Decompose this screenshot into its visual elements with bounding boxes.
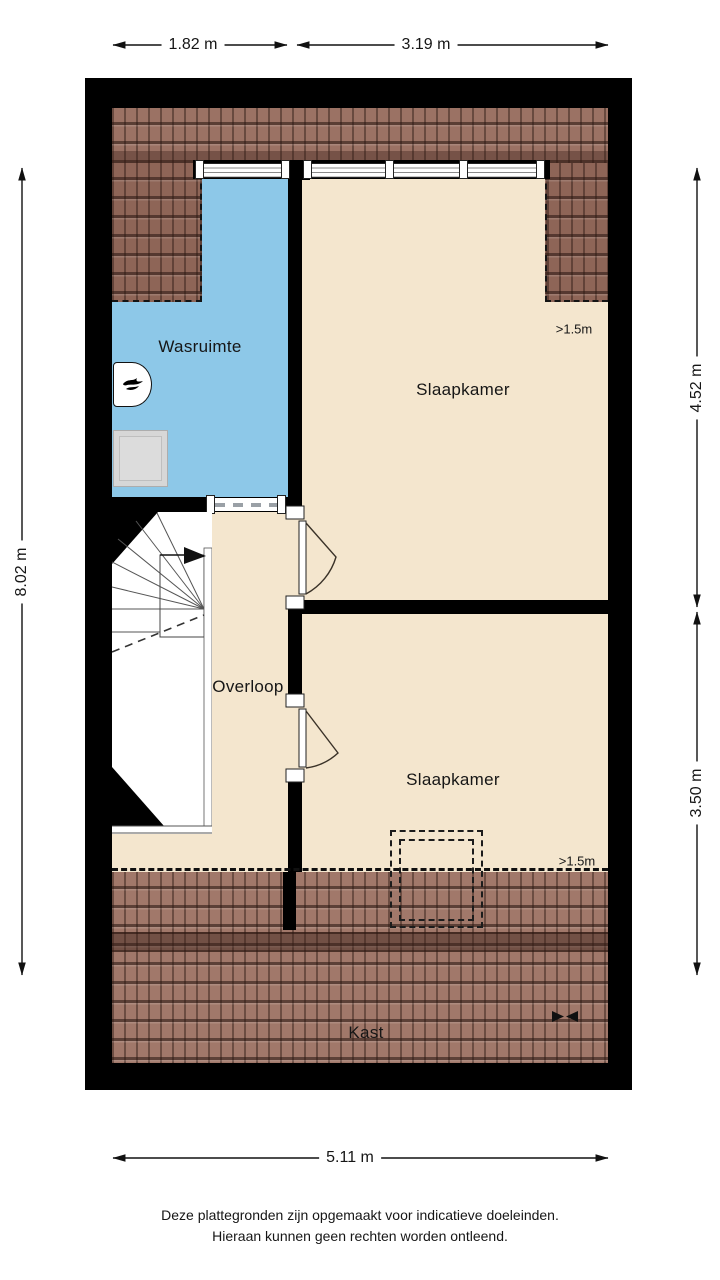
stair-corner-wall	[112, 512, 158, 564]
dimension-label-left: 8.02 m	[13, 541, 31, 604]
window-post	[459, 160, 468, 179]
dimension-label-top-left: 1.82 m	[162, 36, 225, 54]
roof-patch-right	[545, 163, 608, 302]
door-opening-bottom	[288, 707, 302, 769]
stair-landing-edge	[112, 826, 212, 834]
room-label-wasruimte: Wasruimte	[158, 337, 241, 357]
dormer-outline-inner	[399, 839, 474, 921]
wall-between-bedrooms	[288, 600, 632, 614]
headroom-label-top: >1.5m	[556, 322, 593, 337]
room-label-slaapkamer-bottom: Slaapkamer	[406, 770, 500, 790]
door-opening-top	[288, 519, 302, 596]
dimension-label-right-bottom: 3.50 m	[688, 762, 706, 825]
room-label-slaapkamer-top: Slaapkamer	[416, 380, 510, 400]
roof-patch-left	[112, 163, 202, 302]
door-frame-post	[277, 495, 286, 514]
dimension-label-bottom: 5.11 m	[319, 1149, 381, 1167]
stair-handrail-box	[160, 555, 204, 637]
stairs-drawing	[112, 512, 212, 834]
window-post	[536, 160, 545, 179]
headroom-label-bottom: >1.5m	[559, 854, 596, 869]
stair-walkline-dashed	[112, 615, 204, 652]
roof-ridge-band	[112, 932, 608, 952]
window-post	[303, 160, 312, 179]
window-post	[281, 160, 290, 179]
wall-stub-in-roof	[283, 872, 296, 930]
disclaimer-line-2: Hieraan kunnen geen rechten worden ontle…	[0, 1226, 720, 1247]
window-wasruimte	[199, 163, 289, 178]
window-post	[385, 160, 394, 179]
flame-icon	[121, 377, 145, 393]
dimension-label-right-top: 4.52 m	[688, 357, 706, 420]
stairwell	[112, 512, 212, 834]
window-post	[195, 160, 204, 179]
overloop-lower-area	[112, 834, 212, 872]
doorway-threshold-dashes	[215, 503, 277, 507]
stair-corner-wall	[112, 767, 164, 826]
roof-edge-dashed-line	[112, 868, 608, 871]
arrow-right-icon	[184, 547, 206, 564]
window-slaapkamer	[306, 163, 545, 178]
washing-machine-icon	[113, 430, 168, 487]
room-label-kast: Kast	[348, 1023, 383, 1043]
boiler-icon	[113, 362, 152, 407]
stair-treads	[112, 513, 204, 632]
bowtie-symbol-icon	[552, 1010, 578, 1023]
doorway-wasruimte	[213, 498, 279, 511]
disclaimer-line-1: Deze plattegronden zijn opgemaakt voor i…	[0, 1205, 720, 1226]
floor-plan-canvas: 1.82 m 3.19 m 8.02 m 4.52 m 3.50 m 5.11 …	[0, 0, 720, 1280]
washing-machine-door	[119, 436, 162, 481]
stair-balustrade	[204, 548, 212, 834]
dimension-label-top-right: 3.19 m	[395, 36, 458, 54]
room-label-overloop: Overloop	[212, 677, 283, 697]
